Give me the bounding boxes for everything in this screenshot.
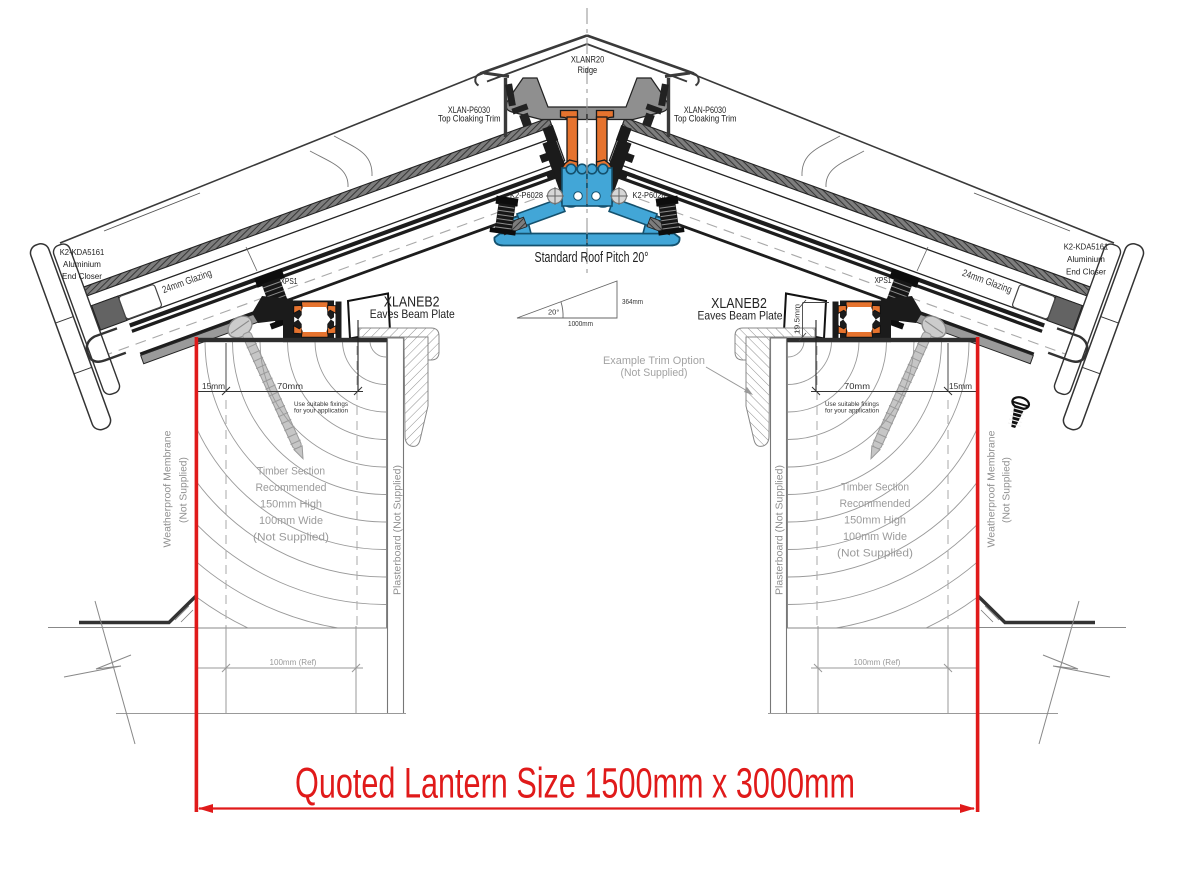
svg-text:Example Trim Option: Example Trim Option bbox=[603, 355, 705, 367]
svg-text:Standard Roof Pitch 20°: Standard Roof Pitch 20° bbox=[535, 250, 649, 266]
svg-text:Ridge: Ridge bbox=[578, 65, 598, 76]
svg-text:19.5mm: 19.5mm bbox=[793, 304, 802, 334]
svg-text:Aluminium: Aluminium bbox=[1067, 254, 1105, 264]
svg-text:Quoted Lantern Size 1500mm x 3: Quoted Lantern Size 1500mm x 3000mm bbox=[295, 759, 855, 807]
svg-text:Use suitable fixings: Use suitable fixings bbox=[825, 402, 879, 408]
svg-text:Plasterboard (Not Supplied): Plasterboard (Not Supplied) bbox=[392, 465, 404, 595]
svg-text:(Not Supplied): (Not Supplied) bbox=[1001, 457, 1013, 523]
svg-text:End Closer: End Closer bbox=[62, 271, 102, 281]
svg-text:(Not Supplied): (Not Supplied) bbox=[253, 532, 329, 544]
svg-text:100mm (Ref): 100mm (Ref) bbox=[854, 658, 901, 667]
svg-text:20°: 20° bbox=[548, 308, 559, 317]
svg-text:Eaves Beam Plate: Eaves Beam Plate bbox=[698, 310, 783, 323]
svg-text:for your application: for your application bbox=[825, 409, 879, 415]
svg-text:Timber Section: Timber Section bbox=[841, 482, 909, 494]
svg-text:100mm Wide: 100mm Wide bbox=[843, 531, 907, 543]
svg-text:15mm: 15mm bbox=[949, 382, 972, 391]
svg-text:Weatherproof Membrane: Weatherproof Membrane bbox=[162, 430, 174, 547]
svg-text:70mm: 70mm bbox=[277, 382, 303, 391]
svg-text:Timber Section: Timber Section bbox=[257, 466, 325, 478]
svg-text:(Not Supplied): (Not Supplied) bbox=[837, 548, 913, 560]
svg-text:(Not Supplied): (Not Supplied) bbox=[621, 367, 688, 379]
svg-text:Use suitable fixings: Use suitable fixings bbox=[294, 402, 348, 408]
svg-text:15mm: 15mm bbox=[202, 382, 225, 391]
svg-text:100mm (Ref): 100mm (Ref) bbox=[270, 658, 317, 667]
svg-text:End Closer: End Closer bbox=[1066, 266, 1106, 276]
svg-text:XLANR20: XLANR20 bbox=[571, 54, 604, 65]
svg-text:364mm: 364mm bbox=[622, 297, 643, 306]
svg-text:XPS1: XPS1 bbox=[281, 276, 298, 286]
svg-text:for your application: for your application bbox=[294, 409, 348, 415]
svg-text:K2-P6028: K2-P6028 bbox=[510, 190, 543, 200]
svg-text:K2-KDA5161: K2-KDA5161 bbox=[60, 247, 105, 257]
svg-text:Top Cloaking Trim: Top Cloaking Trim bbox=[674, 114, 737, 125]
svg-text:Recommended: Recommended bbox=[256, 482, 327, 494]
svg-text:K2-P6028: K2-P6028 bbox=[633, 190, 666, 200]
svg-text:Weatherproof Membrane: Weatherproof Membrane bbox=[986, 430, 998, 547]
svg-text:1000mm: 1000mm bbox=[568, 319, 593, 328]
svg-text:Plasterboard (Not Supplied): Plasterboard (Not Supplied) bbox=[774, 465, 786, 595]
svg-text:K2-KDA5161: K2-KDA5161 bbox=[1064, 242, 1109, 252]
svg-text:(Not Supplied): (Not Supplied) bbox=[178, 457, 190, 523]
svg-text:Top Cloaking Trim: Top Cloaking Trim bbox=[438, 114, 501, 125]
svg-text:70mm: 70mm bbox=[844, 382, 870, 391]
svg-text:XPS1: XPS1 bbox=[875, 275, 892, 285]
svg-text:Eaves Beam Plate: Eaves Beam Plate bbox=[370, 308, 455, 321]
svg-text:150mm High: 150mm High bbox=[260, 499, 322, 511]
svg-text:100mm Wide: 100mm Wide bbox=[259, 515, 323, 527]
svg-text:150mm High: 150mm High bbox=[844, 515, 906, 527]
svg-text:Aluminium: Aluminium bbox=[63, 259, 101, 269]
svg-text:Recommended: Recommended bbox=[840, 498, 911, 510]
